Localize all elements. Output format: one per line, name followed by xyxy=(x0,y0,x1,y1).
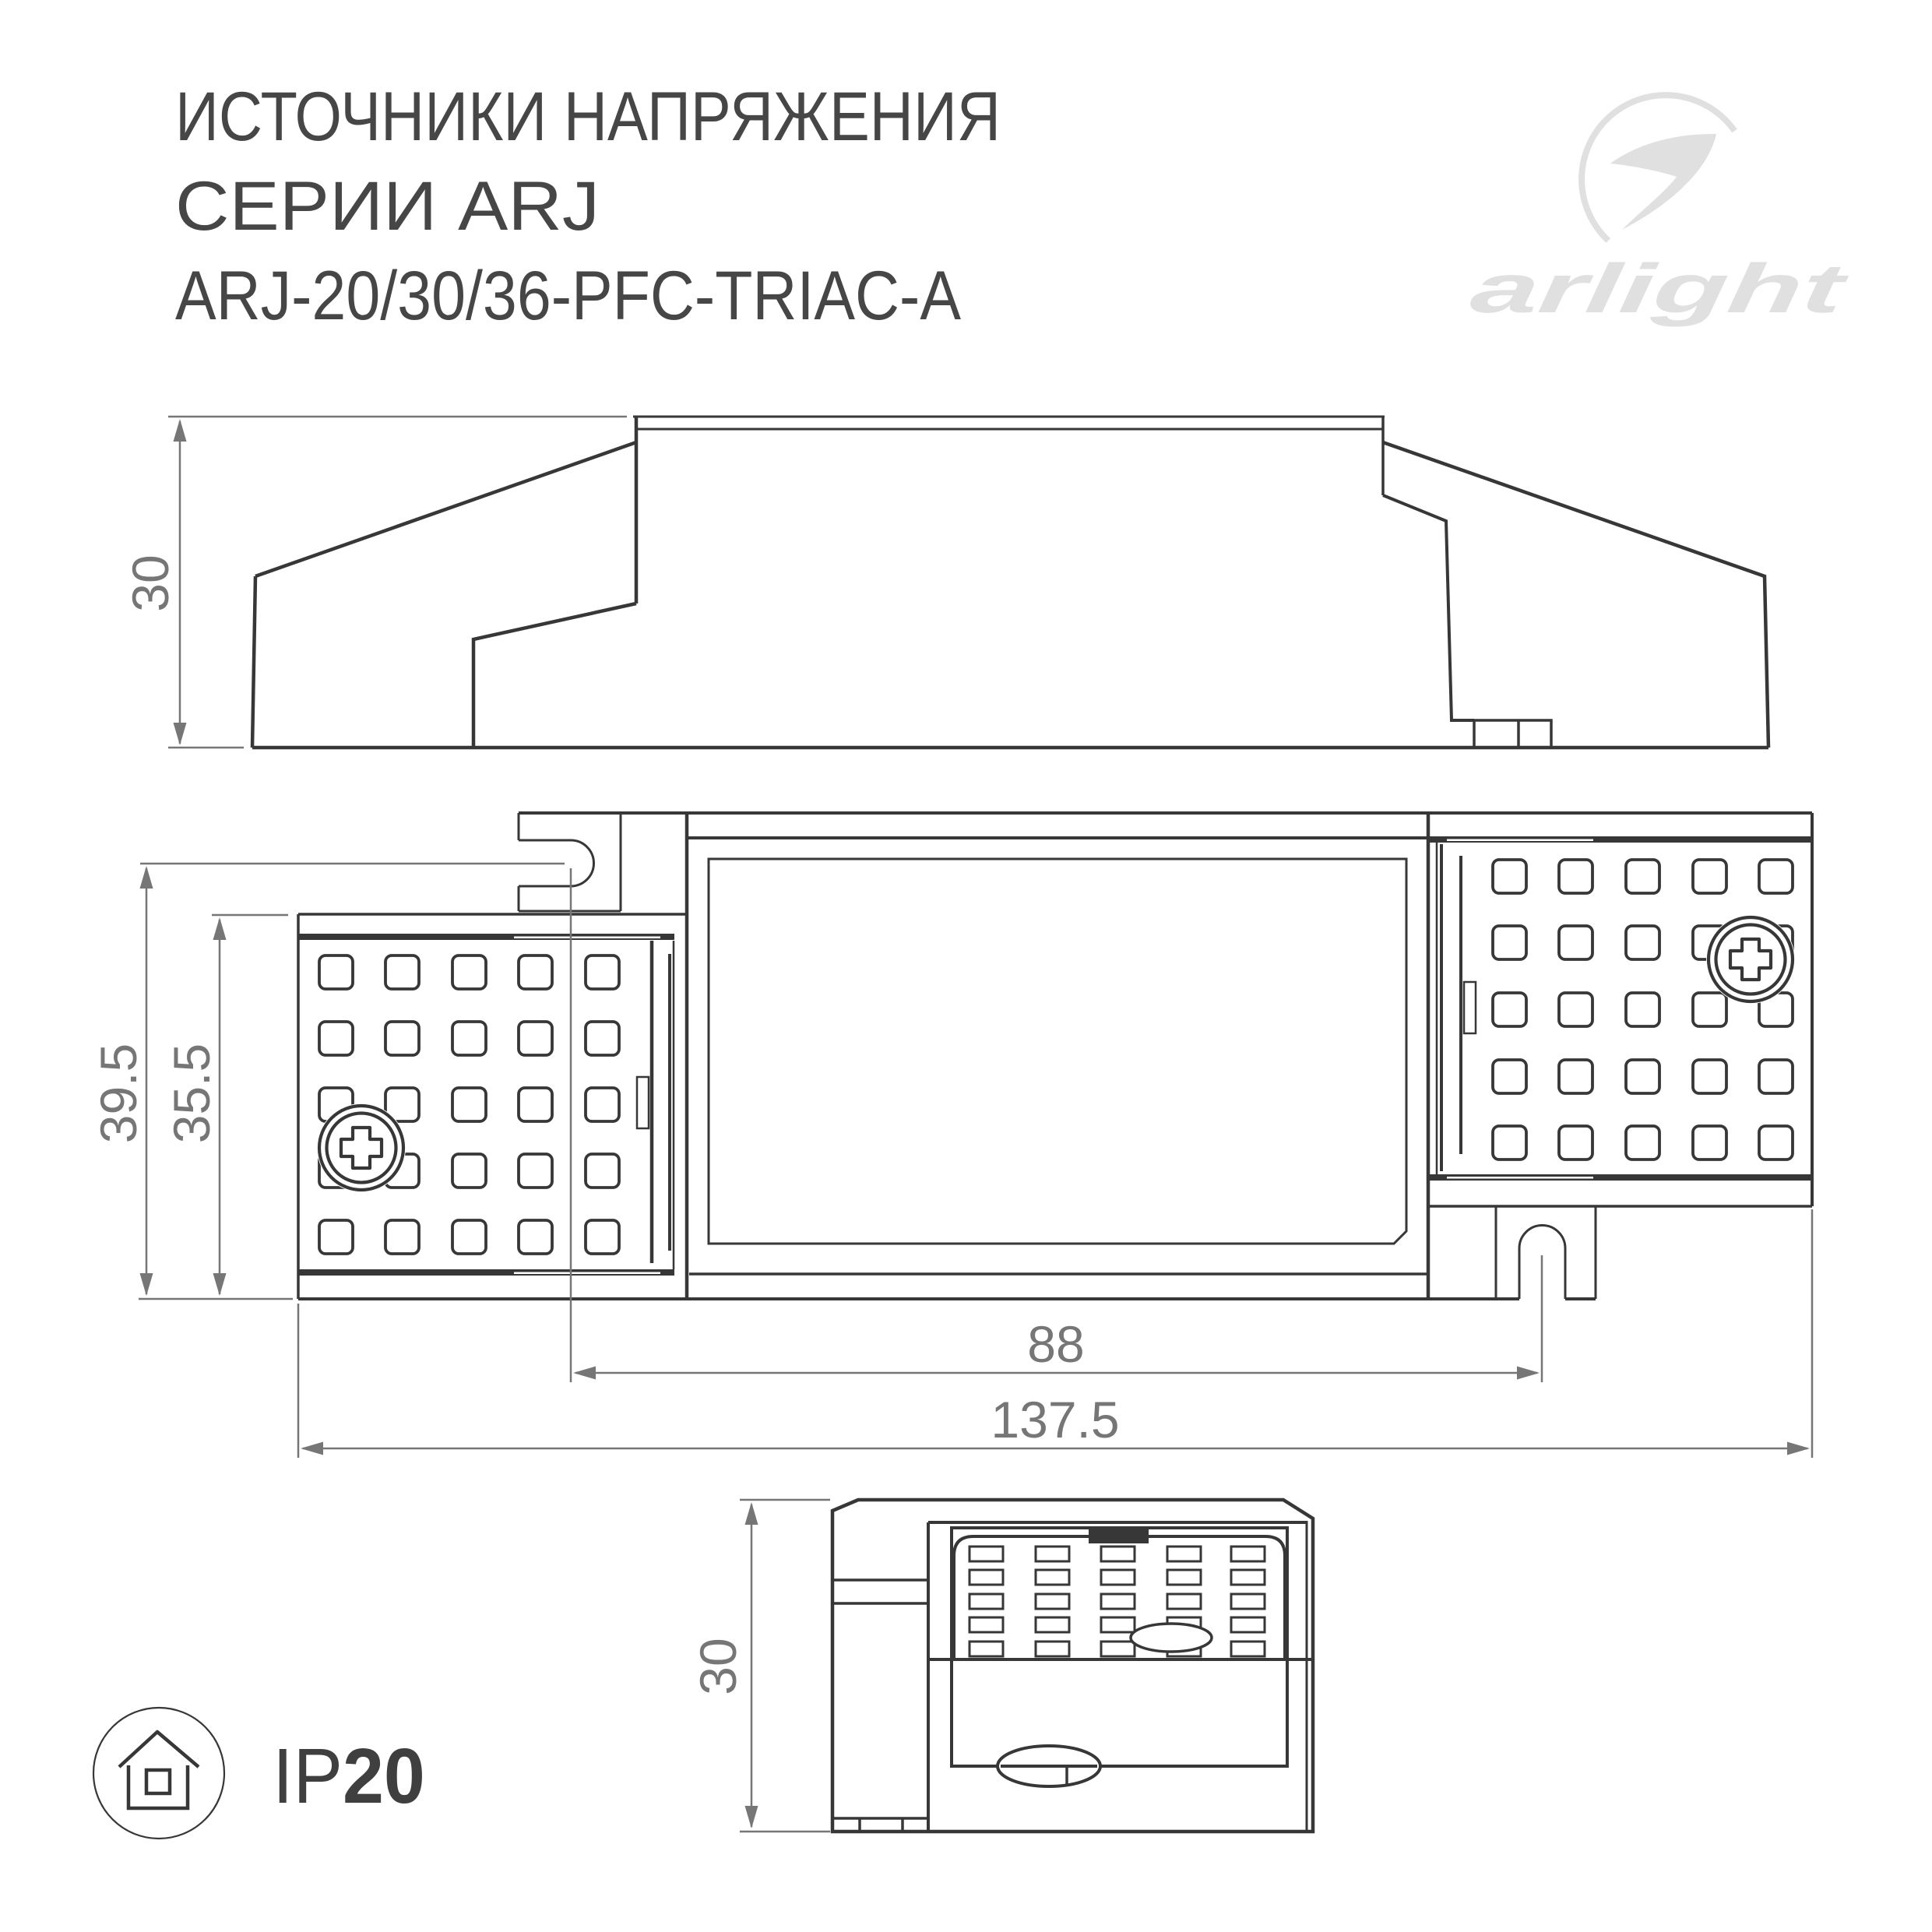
svg-text:IP20: IP20 xyxy=(273,1733,425,1820)
svg-text:88: 88 xyxy=(1027,1315,1084,1373)
svg-text:30: 30 xyxy=(689,1638,747,1694)
svg-text:arlight: arlight xyxy=(1467,249,1853,327)
svg-text:ИСТОЧНИКИ НАПРЯЖЕНИЯ: ИСТОЧНИКИ НАПРЯЖЕНИЯ xyxy=(175,77,1001,155)
svg-text:137.5: 137.5 xyxy=(991,1391,1119,1448)
svg-text:39.5: 39.5 xyxy=(90,1043,147,1143)
svg-text:СЕРИИ ARJ: СЕРИИ ARJ xyxy=(175,167,600,245)
svg-text:ARJ-20/30/36-PFC-TRIAC-A: ARJ-20/30/36-PFC-TRIAC-A xyxy=(175,256,962,334)
svg-text:35.5: 35.5 xyxy=(163,1043,220,1143)
svg-text:30: 30 xyxy=(121,554,179,611)
